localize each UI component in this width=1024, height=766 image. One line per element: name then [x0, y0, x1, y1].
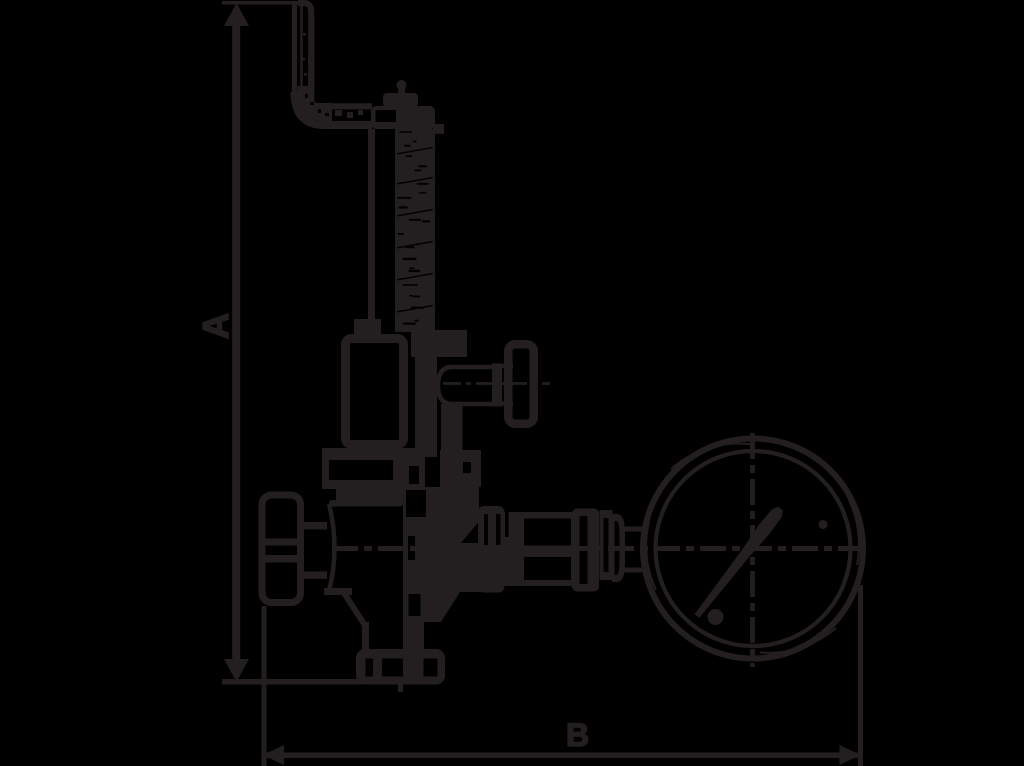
- svg-text:A: A: [195, 313, 236, 339]
- svg-text:B: B: [566, 717, 589, 753]
